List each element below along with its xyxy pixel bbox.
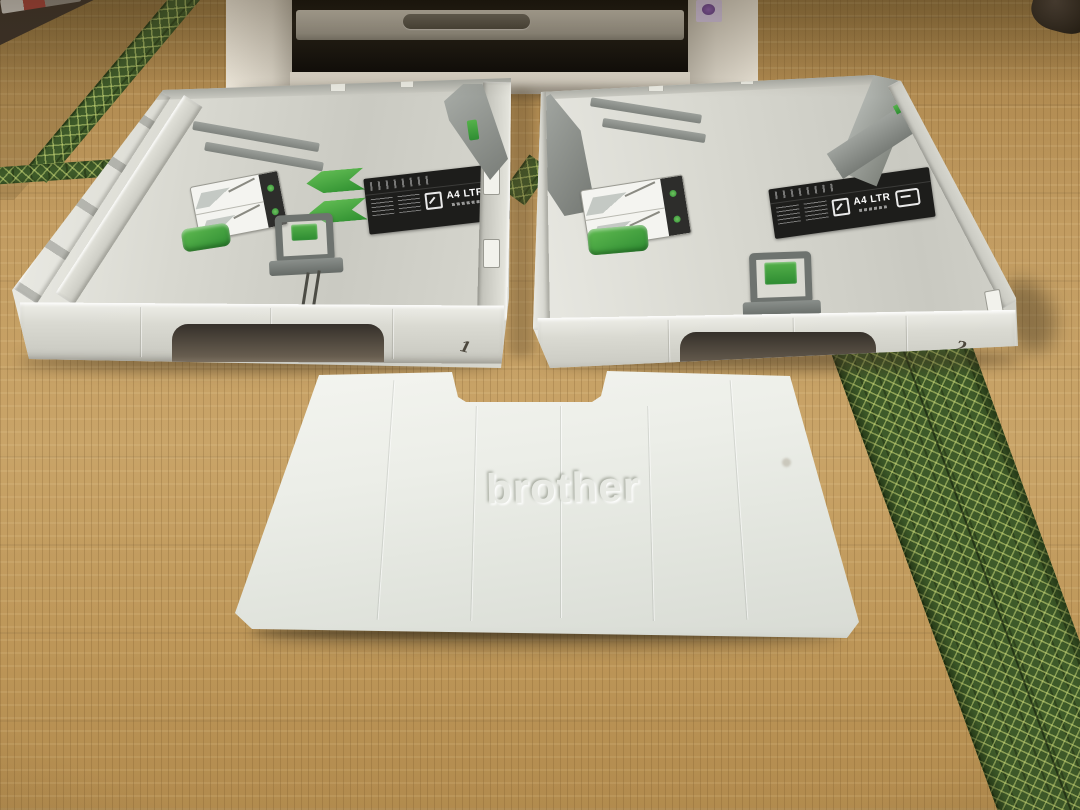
paper-size-subtext <box>452 199 480 205</box>
printer-drawer-handle <box>403 14 530 29</box>
tray-cover: brother <box>230 366 866 650</box>
green-release-recess-tray1 <box>180 222 231 252</box>
photo-scene: A4 LTR 1 <box>0 0 1080 810</box>
front-seam <box>668 320 670 368</box>
paper-icon <box>831 197 850 216</box>
paper-icon <box>424 191 443 210</box>
guide-frame <box>749 251 813 305</box>
fineprint-block <box>776 203 801 224</box>
fineprint-block <box>371 196 395 216</box>
paper-length-guide-tray2 <box>749 251 821 317</box>
green-arrow-icon <box>305 168 365 195</box>
front-seam <box>392 309 393 359</box>
gap-shadow <box>508 90 534 358</box>
tray1-wall-slot <box>483 239 500 268</box>
printer-sticker <box>696 0 722 22</box>
cover-smudge <box>782 458 791 467</box>
guide-frame <box>274 213 334 264</box>
printer-left-side <box>226 0 292 94</box>
guide-green-latch <box>764 262 797 285</box>
fineprint-block <box>803 200 828 221</box>
printer-tray-opening <box>292 0 688 80</box>
guide-green-latch <box>291 224 318 241</box>
paper-length-guide-tray1 <box>274 212 343 275</box>
printer-drawer-front <box>296 10 684 40</box>
cover-seam <box>647 406 654 621</box>
cover-seam <box>730 380 748 619</box>
tray1-front-cutout <box>172 324 384 362</box>
green-release-recess-tray2 <box>587 224 649 255</box>
cover-seam <box>377 380 395 619</box>
brother-logo: brother <box>448 462 679 514</box>
front-seam <box>140 307 141 357</box>
fineprint-block <box>397 193 421 213</box>
